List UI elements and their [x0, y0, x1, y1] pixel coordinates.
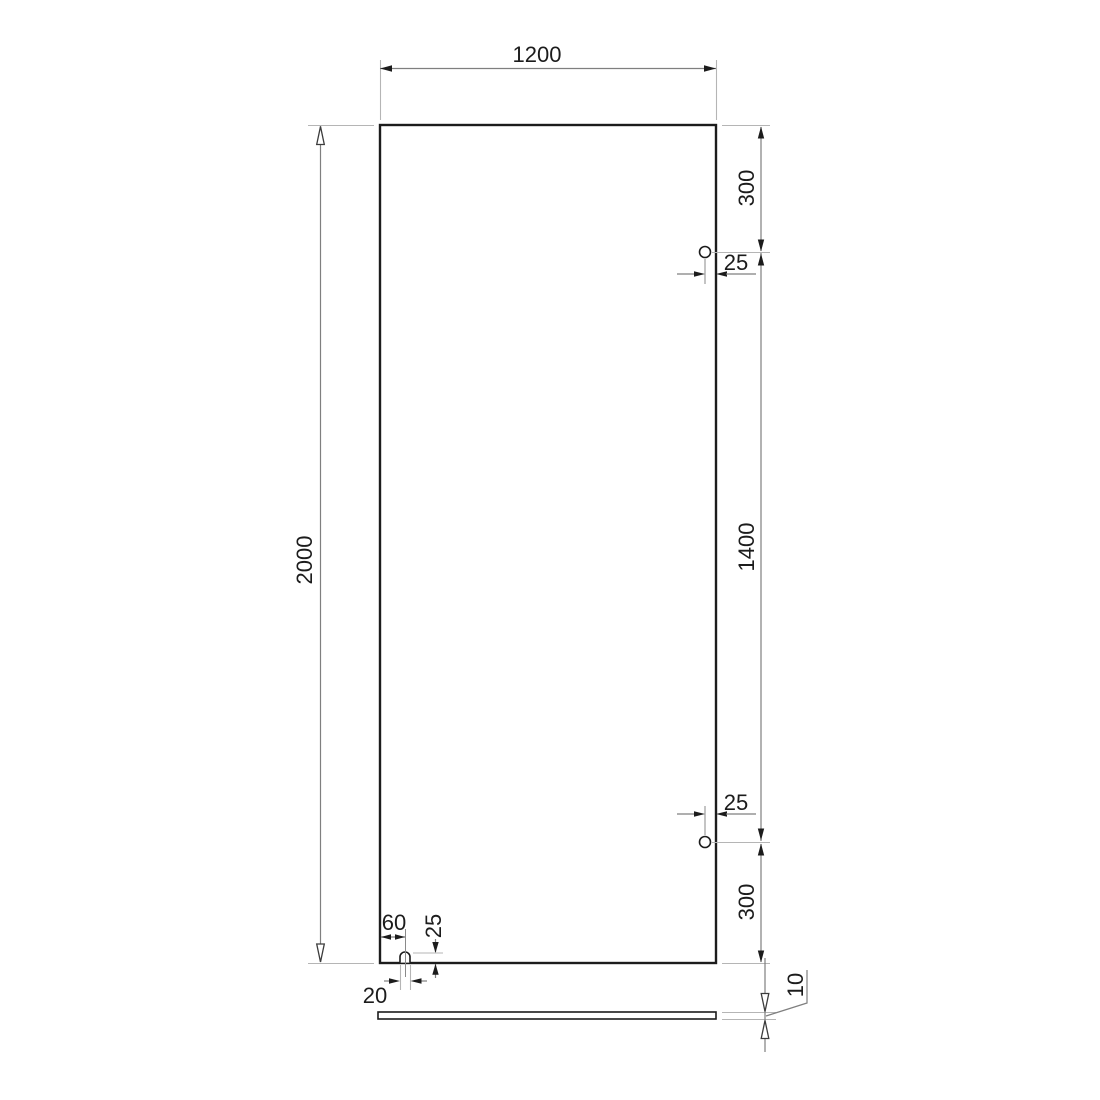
side-strip-outline — [378, 1012, 716, 1019]
dim-slot-width: 20 — [363, 965, 427, 1008]
dim-panel-thickness: 10 — [722, 958, 808, 1052]
arrowhead — [380, 65, 392, 71]
dim-hole-bottom-offset-label: 300 — [734, 884, 759, 921]
arrowhead — [758, 844, 764, 856]
dim-panel-height: 2000 — [292, 126, 374, 964]
hole-top — [700, 247, 711, 258]
arrowhead — [389, 978, 400, 984]
arrowhead — [758, 829, 764, 841]
arrowhead — [432, 964, 438, 975]
hole-bottom — [700, 837, 711, 848]
panel-outline — [380, 125, 716, 963]
dim-hole-top-offset: 300 — [712, 126, 770, 253]
arrowhead-open — [317, 127, 325, 145]
technical-drawing-canvas: 1200 2000 300 25 1400 — [0, 0, 1100, 1100]
dim-hole-spacing: 1400 — [734, 253, 764, 841]
dim-hole-top-offset-label: 300 — [734, 170, 759, 207]
dim-panel-width-label: 1200 — [513, 42, 562, 67]
arrowhead — [411, 978, 422, 984]
arrowhead — [758, 254, 764, 266]
dim-hole-bottom-offset: 300 — [712, 843, 770, 964]
dim-slot-width-label: 20 — [363, 983, 387, 1008]
panel-bottom-view — [378, 1012, 716, 1019]
dim-hole-spacing-label: 1400 — [734, 523, 759, 572]
dim-slot-depth-label: 25 — [421, 914, 446, 938]
dim-hole-bottom-edge-offset-label: 25 — [724, 790, 748, 815]
panel-front-view — [380, 125, 716, 963]
dim-hole-top-edge-offset-label: 25 — [724, 250, 748, 275]
arrowhead — [758, 240, 764, 252]
dim-panel-thickness-label: 10 — [783, 973, 808, 997]
dim-panel-height-label: 2000 — [292, 536, 317, 585]
arrowhead — [758, 951, 764, 963]
dim-panel-width: 1200 — [380, 42, 717, 120]
arrowhead — [704, 65, 716, 71]
dim-slot-center-offset-label: 60 — [382, 910, 406, 935]
arrowhead-open — [761, 1021, 769, 1039]
arrowhead — [758, 127, 764, 139]
arrowhead-open — [317, 944, 325, 962]
arrowhead-open — [761, 994, 769, 1012]
